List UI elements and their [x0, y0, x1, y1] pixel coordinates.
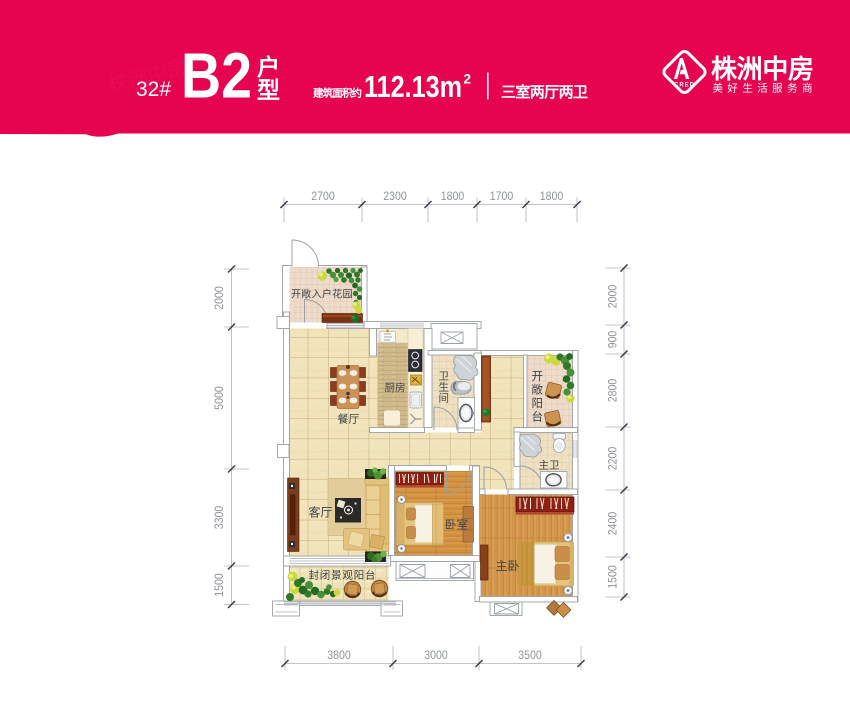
svg-text:2400: 2400	[608, 512, 620, 536]
svg-text:1500: 1500	[214, 573, 226, 597]
svg-text:3800: 3800	[327, 650, 351, 662]
svg-text:2200: 2200	[608, 447, 620, 471]
svg-text:型: 型	[257, 77, 280, 103]
svg-text:客厅: 客厅	[309, 505, 333, 520]
svg-text:封闭景观阳台: 封闭景观阳台	[309, 569, 377, 582]
svg-text:美好生活服务商: 美好生活服务商	[713, 82, 813, 95]
svg-text:2300: 2300	[383, 191, 407, 203]
svg-text:开敞入户花园: 开敞入户花园	[291, 288, 353, 301]
svg-text:1700: 1700	[490, 191, 514, 203]
svg-text:5000: 5000	[214, 386, 226, 410]
svg-text:建筑面积约: 建筑面积约	[312, 87, 362, 100]
svg-text:主卧: 主卧	[496, 559, 520, 573]
svg-text:3300: 3300	[214, 506, 226, 530]
svg-text:2700: 2700	[311, 191, 335, 203]
svg-text:阳: 阳	[532, 397, 544, 410]
svg-text:2000: 2000	[214, 286, 226, 310]
svg-text:112.13m: 112.13m	[364, 69, 462, 104]
svg-text:1500: 1500	[608, 565, 620, 589]
svg-text:厨房: 厨房	[385, 381, 406, 394]
svg-text:32#: 32#	[136, 78, 171, 101]
svg-text:开: 开	[532, 371, 544, 383]
svg-text:敞: 敞	[532, 383, 544, 397]
svg-text:CRED: CRED	[674, 83, 695, 89]
svg-text:1800: 1800	[441, 191, 465, 203]
svg-text:B2: B2	[181, 40, 252, 112]
svg-text:1800: 1800	[540, 191, 564, 203]
svg-text:2000: 2000	[608, 285, 620, 309]
svg-text:主卫: 主卫	[539, 460, 560, 472]
svg-text:间: 间	[439, 392, 450, 405]
svg-text:2800: 2800	[608, 379, 620, 403]
svg-text:3000: 3000	[424, 650, 448, 662]
svg-text:2: 2	[464, 72, 472, 87]
svg-text:卧室: 卧室	[445, 518, 468, 532]
svg-text:台: 台	[532, 410, 544, 424]
svg-text:餐厅: 餐厅	[338, 412, 360, 426]
svg-text:株洲中房: 株洲中房	[711, 54, 814, 84]
svg-text:三室两厅两卫: 三室两厅两卫	[501, 83, 588, 101]
svg-text:900: 900	[608, 331, 620, 349]
svg-text:3500: 3500	[518, 650, 542, 662]
